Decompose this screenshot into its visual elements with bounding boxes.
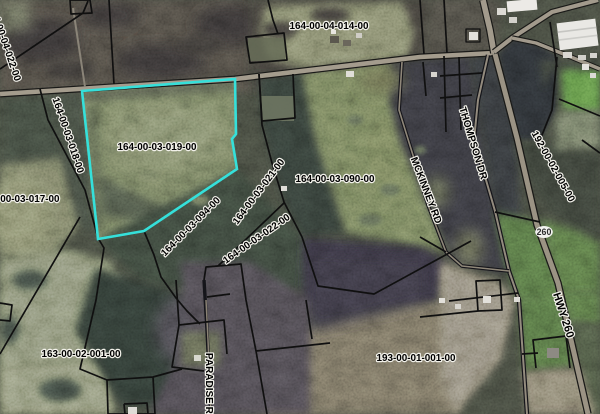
svg-text:193-00-01-001-00: 193-00-01-001-00 [376, 353, 456, 364]
svg-text:163-00-02-001-00: 163-00-02-001-00 [41, 349, 121, 360]
svg-text:164-00-03-090-00: 164-00-03-090-00 [295, 174, 375, 185]
svg-text:164-00-04-014-00: 164-00-04-014-00 [289, 21, 369, 32]
svg-text:164-00-03-019-00: 164-00-03-019-00 [117, 142, 197, 153]
svg-text:PARADISE RD: PARADISE RD [203, 353, 214, 414]
svg-text:260: 260 [537, 227, 552, 237]
svg-text:164-00-03-017-00: 164-00-03-017-00 [0, 194, 60, 205]
